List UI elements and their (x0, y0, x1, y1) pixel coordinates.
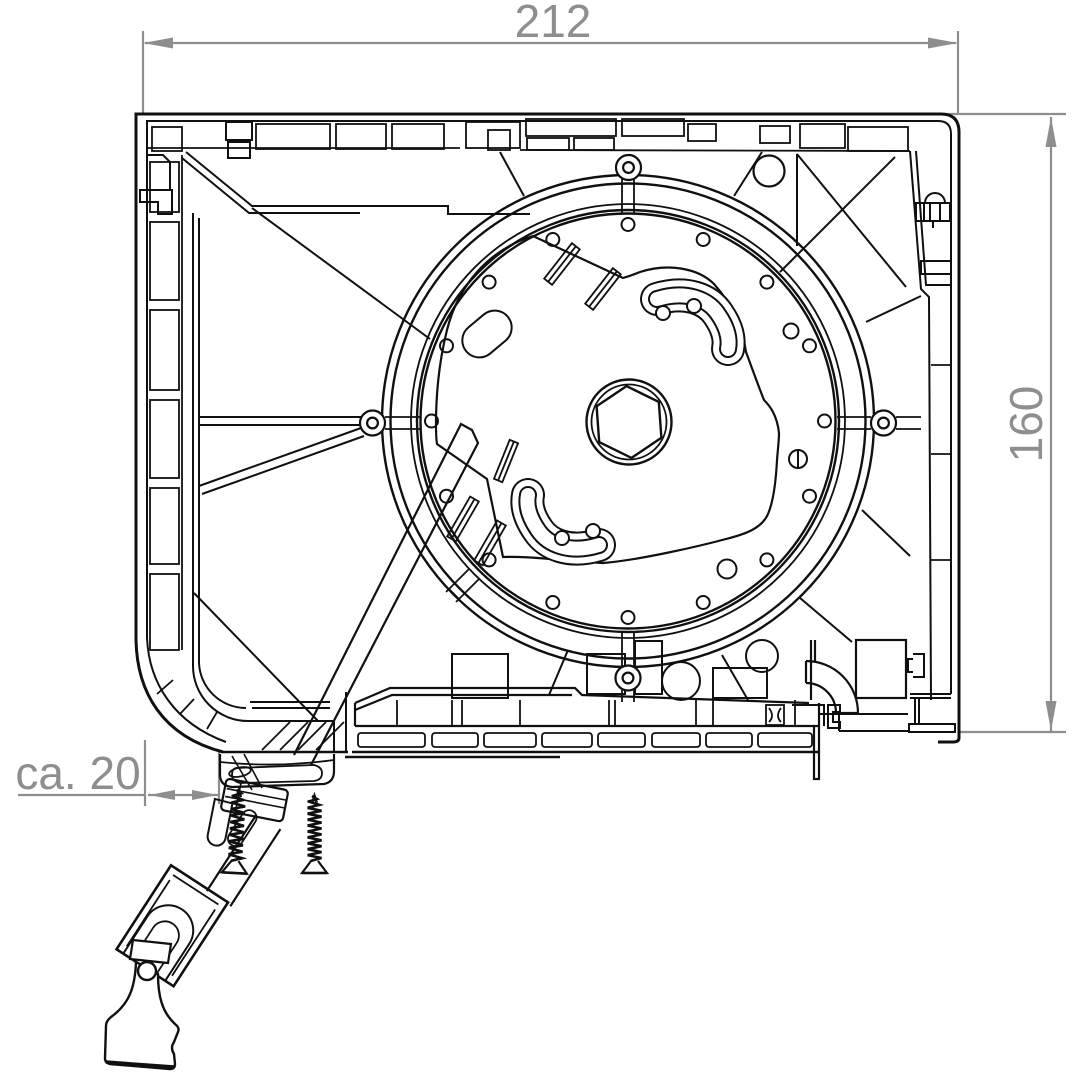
svg-text:212: 212 (515, 0, 592, 47)
svg-text:160: 160 (1000, 386, 1052, 463)
svg-text:ca. 20: ca. 20 (15, 747, 140, 799)
